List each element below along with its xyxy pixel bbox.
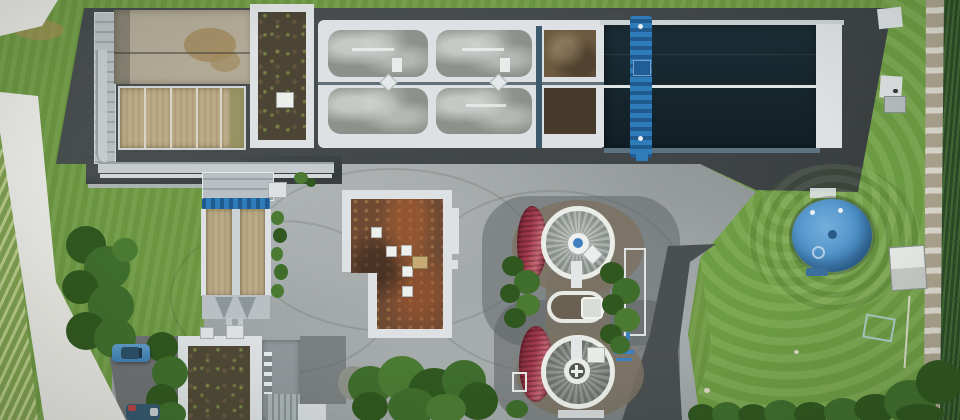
- cell-catwalk: [466, 104, 506, 107]
- crane-dock: [636, 152, 648, 161]
- sludge-annex-east: [262, 340, 300, 420]
- clarifier-crane-blue: [202, 198, 270, 209]
- roof-chimney: [226, 325, 244, 339]
- tree-carpark: [156, 402, 186, 420]
- island-bush: [426, 394, 466, 420]
- hub-platform-south: [587, 347, 605, 363]
- storage-tank-blue: [792, 199, 872, 272]
- roof-chimney: [200, 327, 214, 339]
- pipe-run-vertical: [96, 50, 107, 162]
- annex-windows: [264, 352, 272, 394]
- basin-divider: [114, 52, 252, 54]
- shrub-west: [504, 308, 526, 328]
- clarifier-center-walkway: [232, 209, 240, 296]
- discharge-cone-east: [238, 297, 256, 319]
- sludge-cell-upper: [544, 30, 596, 77]
- headworks-gravel-annex: [250, 4, 314, 148]
- crane-light: [638, 24, 643, 29]
- car-partial-south: [126, 404, 160, 420]
- headworks-basin-upper: [114, 10, 252, 84]
- planter-shrub: [271, 284, 284, 298]
- clarifier-hut: [268, 182, 287, 198]
- goal-frame: [862, 314, 896, 343]
- roof-skylight: [371, 227, 382, 238]
- planter-shrub: [271, 247, 283, 261]
- tree-west: [112, 238, 138, 262]
- planter-shrub: [273, 228, 287, 243]
- lane-divider: [196, 88, 198, 148]
- utility-shed: [889, 245, 928, 291]
- crane-trolley: [633, 60, 651, 76]
- link-cap-white: [581, 297, 603, 319]
- hedge-tree-large: [916, 360, 960, 404]
- cell-platform: [500, 58, 510, 72]
- planter-shrub: [271, 211, 284, 225]
- lane-divider: [144, 88, 146, 148]
- building-side-stair: [450, 208, 459, 254]
- clarifier-lane-west: [206, 209, 232, 296]
- clarifier-ladder-north: [571, 261, 582, 288]
- cell-catwalk: [462, 48, 504, 51]
- sludge-divider-blue: [536, 26, 542, 148]
- tank-railing: [512, 372, 527, 392]
- cell-platform: [392, 58, 402, 72]
- tank-vent: [810, 210, 815, 215]
- yard-tuft: [306, 178, 316, 187]
- crane-bridge-blue: [630, 16, 652, 158]
- gravel-roof: [258, 12, 306, 140]
- lawn-stone: [704, 388, 710, 393]
- island-bush: [352, 392, 388, 420]
- hedge-south: [764, 400, 798, 420]
- cell-catwalk: [352, 48, 394, 51]
- aeration-cell-se: [436, 88, 532, 134]
- algae-strip: [230, 88, 244, 148]
- roof-skylight: [386, 246, 397, 257]
- car-roof: [121, 347, 140, 359]
- annex-shadow-pavement: [300, 336, 346, 404]
- clarifier-apron: [202, 295, 270, 319]
- lane-divider: [220, 88, 222, 148]
- roof-hatch-tan: [412, 256, 428, 269]
- crane-light: [638, 136, 643, 141]
- car-blue: [112, 344, 150, 362]
- tank-vent: [838, 208, 843, 213]
- roof-skylight: [276, 92, 294, 108]
- lawn-stone: [794, 350, 799, 354]
- green-gravel-roof: [188, 346, 250, 420]
- car-red-detail: [128, 405, 136, 411]
- aerial-photo-treatment-plant: [0, 0, 960, 420]
- hub-drive-blue: [573, 238, 583, 248]
- aeration-cell-sw: [328, 88, 428, 134]
- clarifier-platform-top: [202, 172, 274, 201]
- aeration-cell-nw: [328, 30, 428, 77]
- tank-feed-pipe: [806, 268, 828, 276]
- basin-edge-shade: [114, 10, 130, 84]
- side-landing: [450, 260, 458, 269]
- car-windshield: [139, 348, 142, 358]
- tank-pad: [810, 188, 836, 198]
- hedge-south: [794, 402, 828, 420]
- hub-bridge: [575, 365, 578, 377]
- tank-hatch-ring: [812, 246, 825, 259]
- shrub-east: [610, 336, 630, 354]
- blue-equipment: [616, 358, 632, 361]
- aeration-cell-ne: [436, 30, 532, 77]
- clarifier-lane-east: [240, 209, 265, 296]
- lane-divider: [170, 88, 172, 148]
- roof-skylight: [401, 245, 412, 256]
- headworks-basin-lower: [118, 86, 246, 150]
- equipment-shed-small: [884, 96, 906, 113]
- sludge-building: [178, 336, 262, 420]
- central-catwalk-line: [318, 82, 606, 85]
- roof-skylight: [402, 286, 413, 297]
- car-white-detail: [150, 408, 158, 416]
- tank-hatch-dark: [828, 230, 837, 239]
- basin-end-wall: [816, 24, 842, 148]
- equipment-pad-north: [877, 7, 903, 29]
- hedge-tree-large: [896, 404, 944, 420]
- sludge-cell-lower: [544, 88, 596, 134]
- machinery-dot: [893, 89, 898, 93]
- shrub-west: [506, 400, 528, 418]
- loading-pad: [298, 404, 326, 420]
- planter-shrub: [274, 264, 288, 280]
- ribbed-metal-roof: [266, 394, 300, 420]
- south-walkway-stub: [558, 410, 604, 418]
- discharge-cone-west: [215, 297, 233, 319]
